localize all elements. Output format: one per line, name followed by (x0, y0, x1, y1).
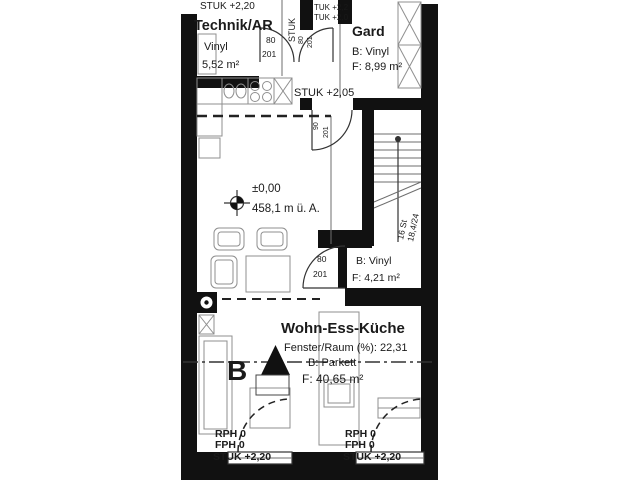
chair (218, 232, 240, 246)
door1-width: 80 (266, 35, 276, 45)
wall-wc-bottom (345, 288, 438, 306)
stuk-door1-label: TUK +2,2 (314, 3, 349, 12)
door2-width: 80 (298, 36, 305, 44)
wall-door3-post (300, 98, 312, 110)
kitchen-block-inner (328, 384, 350, 403)
wc-door-width: 80 (317, 254, 327, 264)
wall-top-stub-a (300, 0, 313, 30)
room-wohn-floor: B: Parkett (308, 357, 356, 369)
wardrobe-left-inner (204, 341, 227, 429)
floor-plan-drawing: STUK +2,20 STUK TUK +2,2 TUK +2,0 Techni… (0, 0, 640, 480)
window-right-stuk: STUK +2,20 (343, 451, 401, 463)
room-technik-area: 5,52 m² (202, 59, 240, 71)
stair-ratio-label: 18,4/24 (405, 212, 421, 242)
dining-table (246, 256, 290, 292)
room-gard-floor: B: Vinyl (352, 46, 389, 58)
room-gard-name: Gard (352, 23, 385, 39)
stove-burner (263, 82, 272, 91)
room-wohn-fenster: Fenster/Raum (%): 22,31 (284, 342, 408, 354)
door2-height: 201 (307, 36, 314, 48)
wc-door-height: 201 (313, 269, 327, 279)
small-hatched-box (199, 315, 214, 334)
wall-wc-left (338, 248, 347, 288)
stuk-vertical-label: STUK (287, 18, 297, 42)
wall-device-icon (196, 292, 217, 313)
dining-set (211, 228, 290, 292)
section-marker-box (256, 375, 289, 395)
room-wohn-area: F: 40,65 m² (302, 372, 363, 386)
floor-plan: STUK +2,20 STUK TUK +2,2 TUK +2,0 Techni… (0, 0, 640, 480)
window-left-fph: FPH 0 (215, 439, 245, 451)
chair (261, 232, 283, 246)
room-gard-area: F: 8,99 m² (352, 61, 402, 73)
room-technik-name: Technik/AR (194, 18, 273, 34)
window-left-swing (238, 399, 291, 452)
stair-walkline-start (395, 136, 401, 142)
level-marker-icon (224, 190, 250, 216)
wall-left (181, 14, 197, 480)
stuk-top-left-label: STUK +2,20 (200, 1, 255, 12)
wall-mid (318, 230, 372, 248)
window-right-swing (371, 399, 424, 452)
stove-burner (251, 93, 260, 102)
door2-swing (299, 28, 333, 62)
wall-stair-left (362, 110, 374, 246)
wall-bottom (181, 464, 438, 480)
room-wc-area: F: 4,21 m² (352, 272, 400, 284)
room-wc-floor: B: Vinyl (356, 255, 391, 267)
room-wohn-name: Wohn-Ess-Küche (281, 320, 405, 337)
door3-width: 90 (313, 122, 320, 130)
wall-bottom-seg3 (424, 452, 438, 464)
door3-height: 201 (323, 126, 330, 138)
stove-burner (263, 93, 272, 102)
section-letter: B (227, 355, 247, 386)
counter-left (197, 104, 222, 136)
stuk-mid-label: STUK +2,05 (294, 87, 354, 99)
window-right-fph: FPH 0 (345, 439, 375, 451)
level-altitude-label: 458,1 m ü. A. (252, 203, 320, 215)
level-zero-label: ±0,00 (252, 183, 281, 195)
counter-left (199, 138, 220, 158)
door1-height: 201 (262, 49, 276, 59)
wall-gard-bottom (353, 98, 421, 110)
stuk-door2-label: TUK +2,0 (314, 13, 349, 22)
chair (215, 260, 233, 284)
room-technik-floor: Vinyl (204, 41, 228, 53)
wall-right (421, 4, 438, 480)
window-left-stuk: STUK +2,20 (213, 451, 271, 463)
wardrobe-hatched (398, 2, 421, 88)
